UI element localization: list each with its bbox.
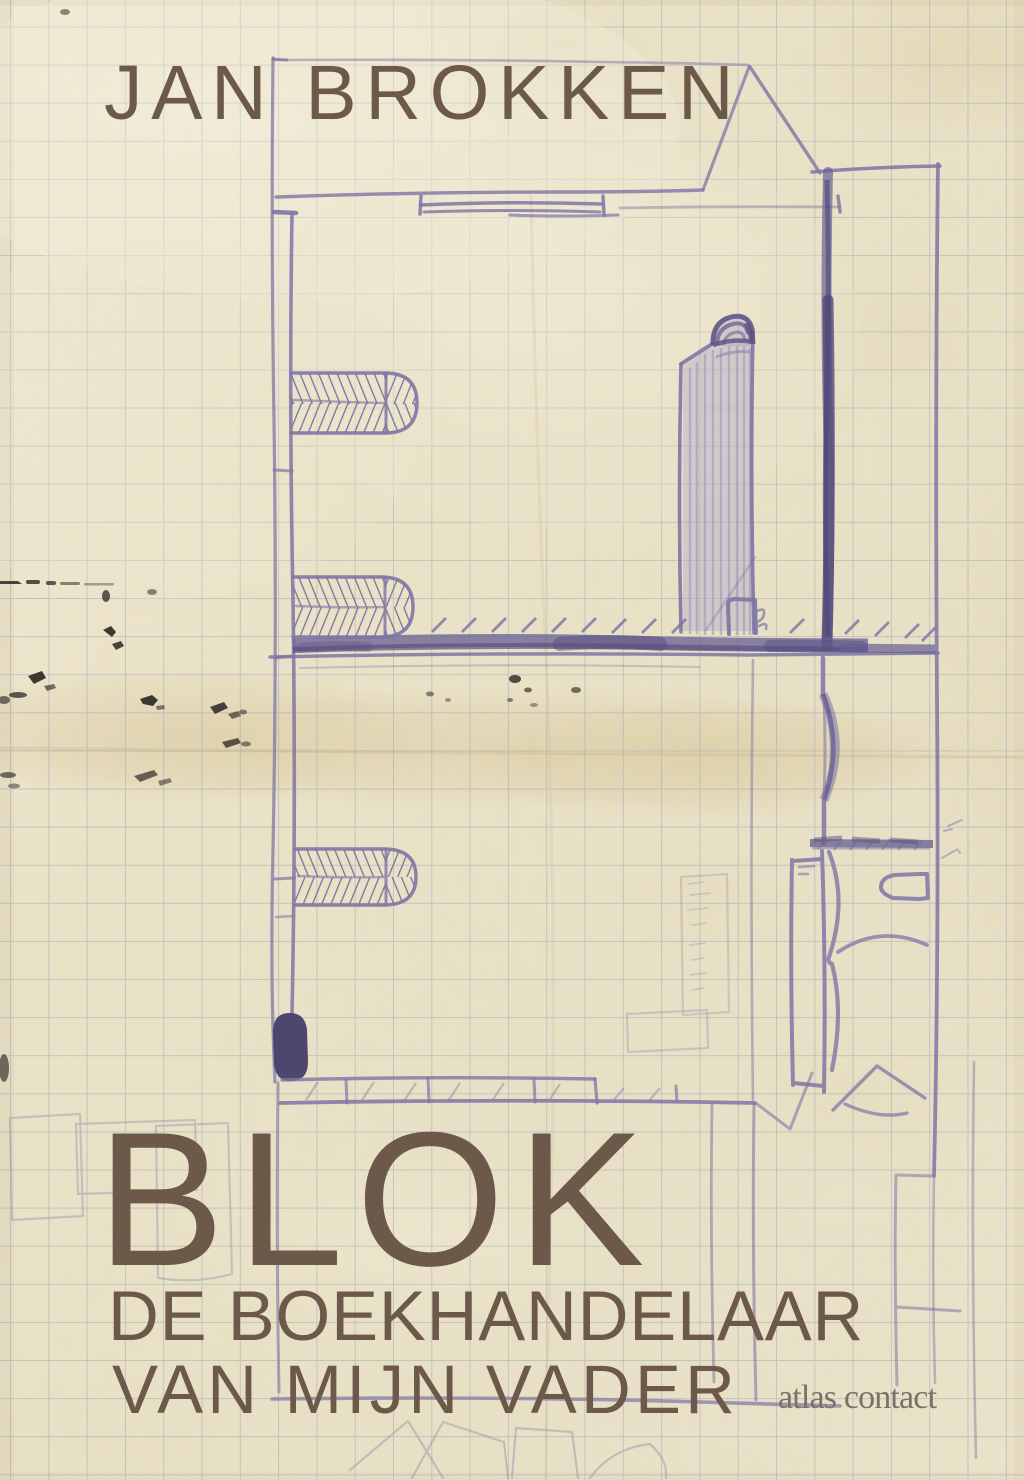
svg-text:BLOK: BLOK	[97, 1093, 657, 1306]
svg-text:DE BOEKHANDELAAR: DE BOEKHANDELAAR	[108, 1276, 864, 1355]
svg-text:JAN BROKKEN: JAN BROKKEN	[104, 50, 742, 136]
svg-text:VAN MIJN VADER: VAN MIJN VADER	[112, 1351, 739, 1428]
svg-text:atlas contact: atlas contact	[778, 1379, 938, 1416]
